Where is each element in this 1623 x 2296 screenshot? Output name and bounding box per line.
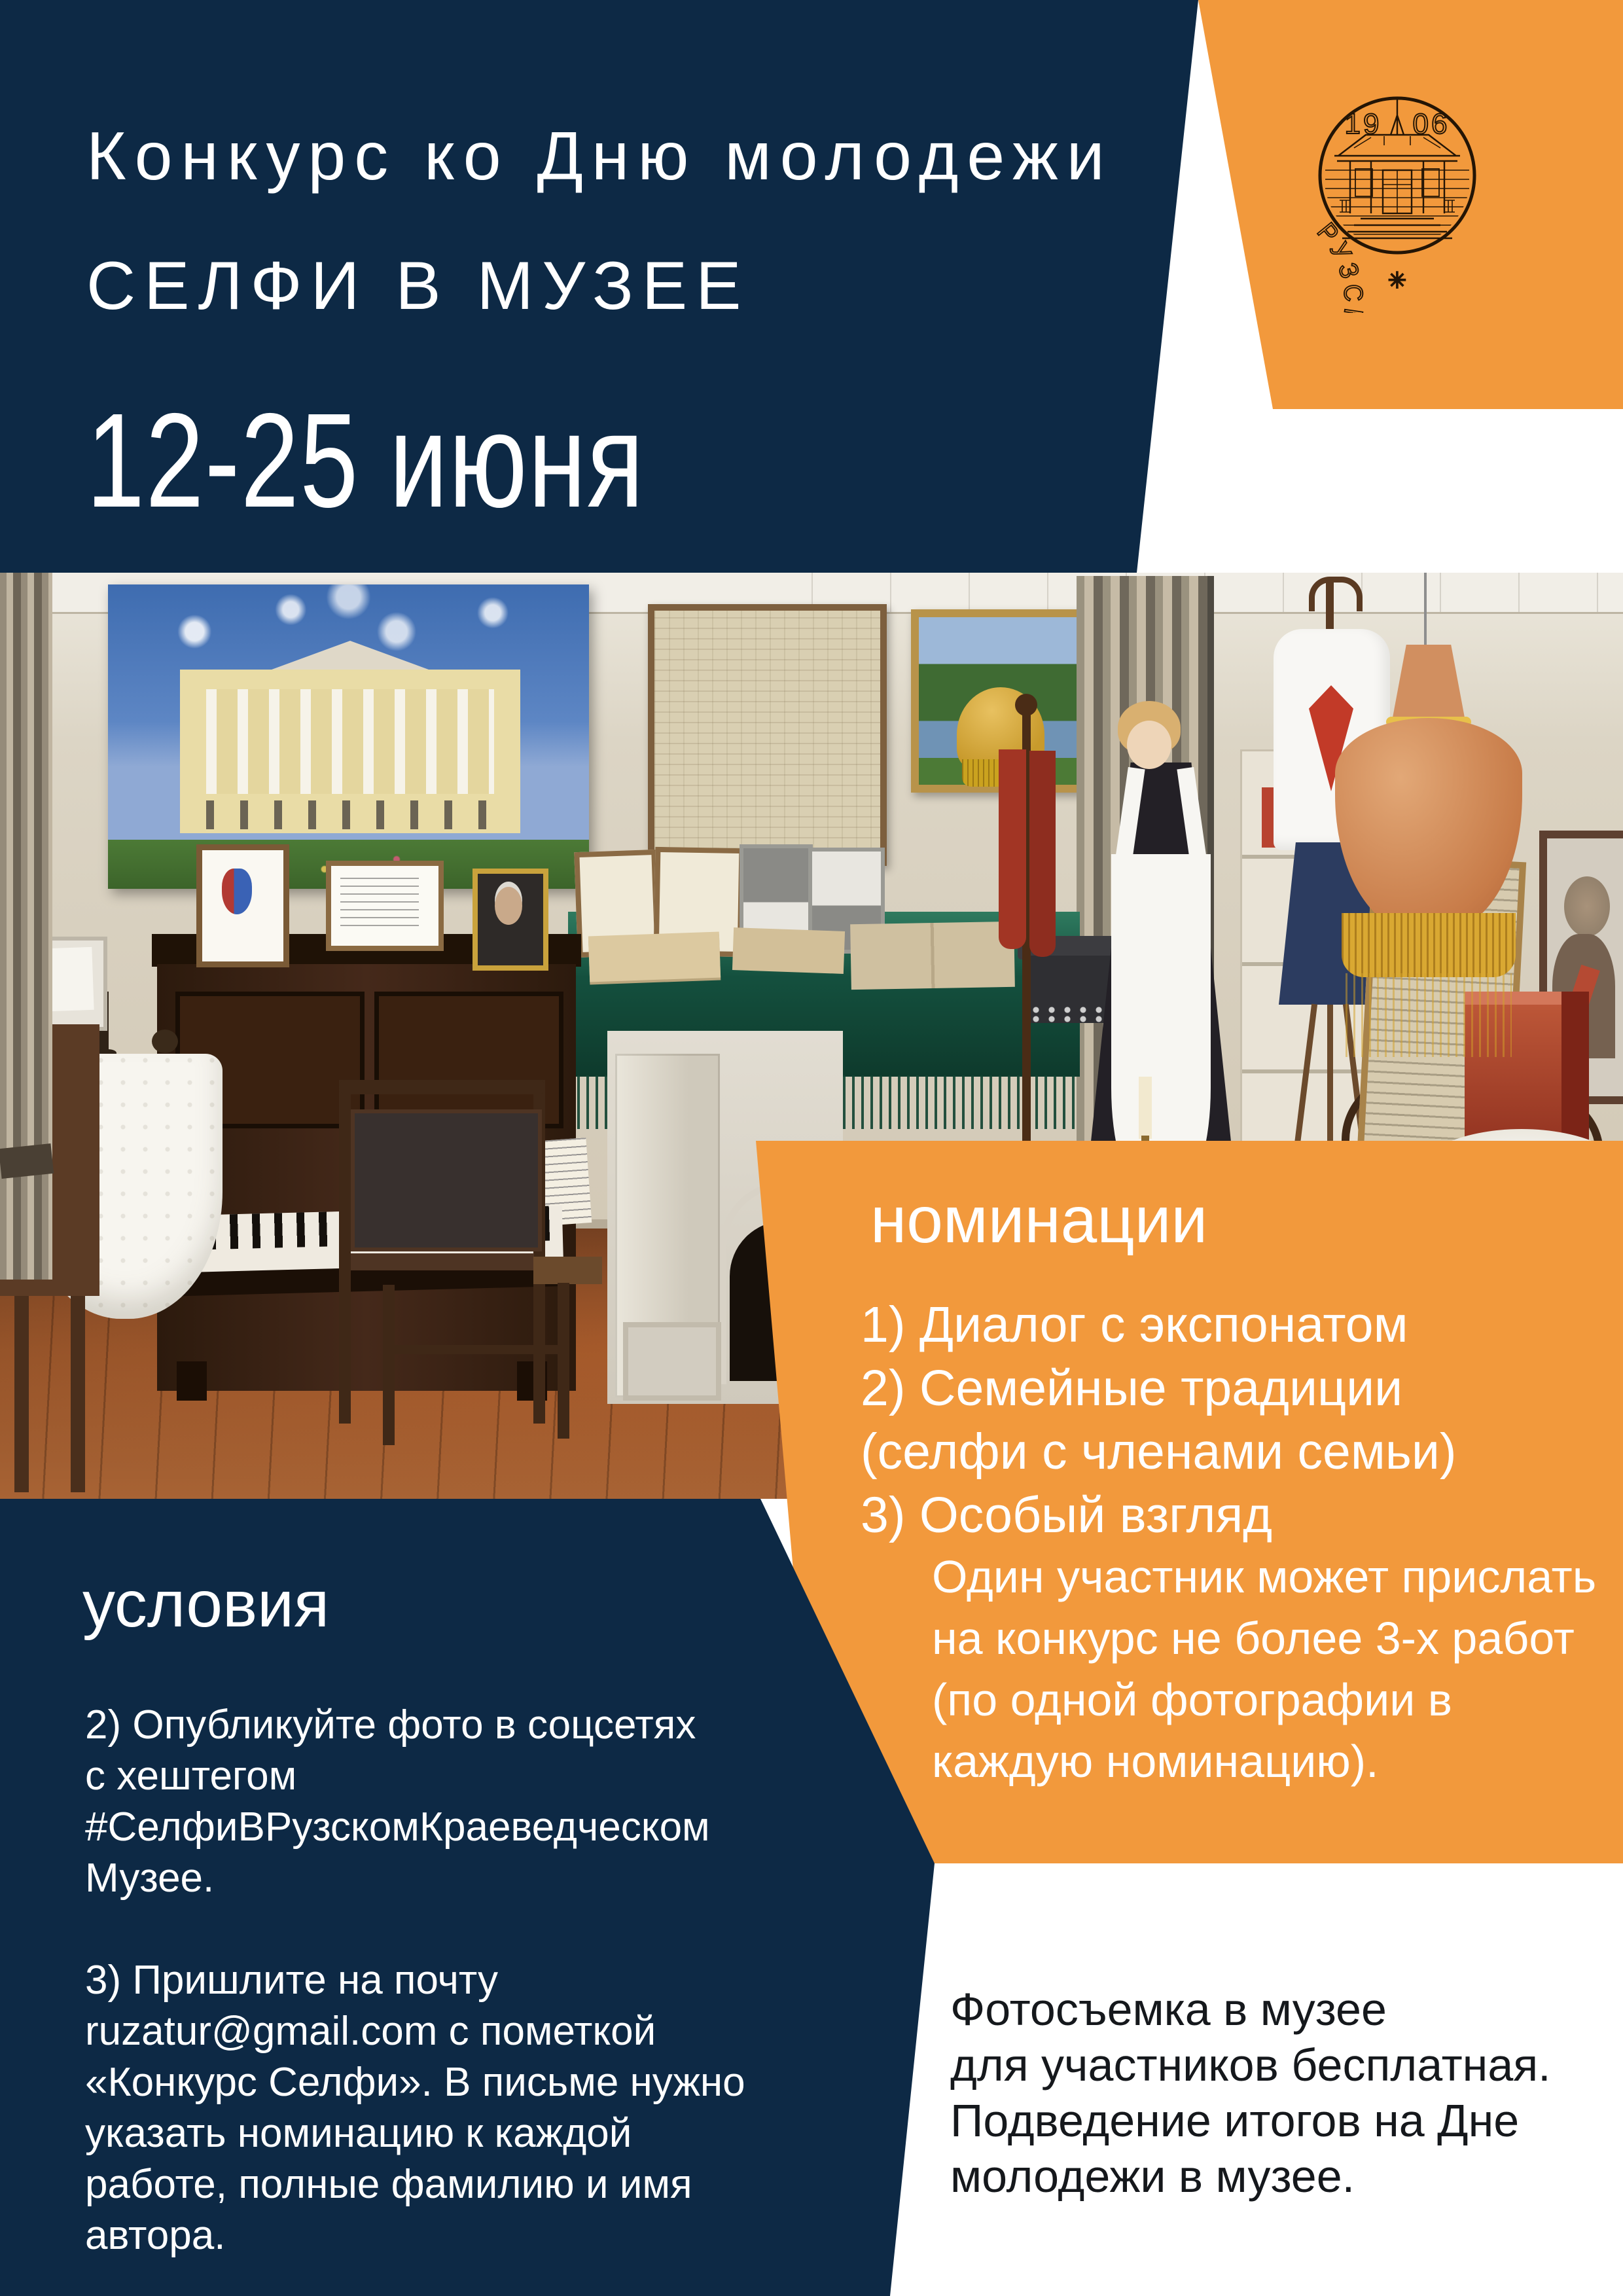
conditions-hashtag: #СелфиВРузскомКраеведческом xyxy=(85,1802,710,1853)
paper-lamp-fringe xyxy=(1342,913,1516,977)
red-banner-2 xyxy=(1029,751,1056,957)
coat-stand-hook xyxy=(1309,577,1363,611)
pavilion-steps xyxy=(1342,219,1452,238)
conditions-line: Музее. xyxy=(85,1853,710,1904)
flag-stand-finial xyxy=(1015,694,1037,716)
conditions-line: с хештегом xyxy=(85,1751,710,1802)
chair-seat xyxy=(533,1257,602,1284)
nomination-item: 3) Особый взгляд xyxy=(861,1484,1457,1547)
conditions-line: указать номинацию к каждой xyxy=(85,2108,745,2159)
footer-line: Подведение итогов на Дне xyxy=(950,2093,1551,2149)
logo-year-right: 06 xyxy=(1413,108,1450,140)
paper-lamp-strands xyxy=(1346,973,1512,1057)
nominations-list: 1) Диалог с экспонатом 2) Семейные тради… xyxy=(861,1293,1457,1547)
conditions-block2: 3) Пришлите на почту ruzatur@gmail.com с… xyxy=(85,1955,745,2261)
footer-line: Фотосъемка в музее xyxy=(950,1982,1551,2037)
footer-line: для участников бесплатная. xyxy=(950,2037,1551,2093)
nomination-item: 2) Семейные традиции xyxy=(861,1357,1457,1420)
logo-year-left: 19 xyxy=(1345,108,1382,140)
paper-lamp-shade xyxy=(1335,718,1522,931)
nomination-item: (селфи с членами семьи) xyxy=(861,1420,1457,1484)
chair-front-leg-2 xyxy=(558,1283,569,1439)
schoolgirl-apron xyxy=(1111,854,1211,1188)
conditions-line: 2) Опубликуйте фото в соцсетях xyxy=(85,1700,710,1751)
piano-leg-left xyxy=(177,1361,207,1401)
portrait-face xyxy=(495,887,522,925)
contest-dates: 12-25 июня xyxy=(86,384,645,538)
brass-candle xyxy=(1139,1077,1152,1139)
conditions-line: автора. xyxy=(85,2210,745,2261)
chair-rung xyxy=(383,1345,569,1354)
old-papers-stack-1 xyxy=(588,932,721,982)
chair-slat xyxy=(351,1253,534,1270)
coat-of-arms xyxy=(222,869,252,914)
paper-lamp-neck xyxy=(1391,645,1466,725)
chair-front-leg-1 xyxy=(383,1285,395,1445)
red-banner-1 xyxy=(999,749,1026,949)
framed-map xyxy=(648,604,887,866)
conditions-line: 3) Пришлите на почту xyxy=(85,1955,745,2006)
poster-title-line2: СЕЛФИ В МУЗЕЕ xyxy=(86,247,750,325)
fireplace-rosette-panel xyxy=(623,1322,721,1401)
conditions-heading: условия xyxy=(82,1567,329,1642)
note-line: каждую номинацию). xyxy=(932,1731,1596,1792)
palace-columns xyxy=(206,689,494,794)
palace-print xyxy=(108,584,589,889)
chair-back-panel xyxy=(351,1109,542,1251)
note-line: (по одной фотографии в xyxy=(932,1669,1596,1731)
pavilion-window-right xyxy=(1422,169,1439,196)
left-curtain-tieback xyxy=(0,1143,54,1179)
museum-logo: РУЗСКИЙ КРАЕВЕДЧЕСКИЙ МУЗЕЙ 19 06 ✳ xyxy=(1260,38,1535,313)
poster-page: Конкурс ко Дню молодежи СЕЛФИ В МУЗЕЕ 12… xyxy=(0,0,1623,2296)
nomination-item: 1) Диалог с экспонатом xyxy=(861,1293,1457,1357)
palace-windows xyxy=(206,800,494,829)
pavilion-spire xyxy=(1391,98,1404,135)
old-papers-stack-2 xyxy=(732,927,845,974)
conditions-line: «Конкурс Селфи». В письме нужно xyxy=(85,2057,745,2108)
logo-star: ✳ xyxy=(1388,268,1407,293)
poster-title-line1: Конкурс ко Дню молодежи xyxy=(86,118,1113,196)
note-line: на конкурс не более 3-х работ xyxy=(932,1607,1596,1669)
display-case-leg-2 xyxy=(71,1296,85,1492)
logo-ring-text: РУЗСКИЙ КРАЕВЕДЧЕСКИЙ МУЗЕЙ xyxy=(1260,179,1368,313)
conditions-email: ruzatur@gmail.com с пометкой xyxy=(85,2006,745,2057)
conditions-line: работе, полные фамилию и имя xyxy=(85,2159,745,2210)
gilt-portrait-frame xyxy=(473,869,548,971)
coat-of-arms-frame xyxy=(196,844,289,967)
text-document-frame xyxy=(326,861,444,951)
small-cup xyxy=(152,1030,178,1053)
note-line: Один участник может прислать xyxy=(932,1546,1596,1607)
footer-line: молодежи в музее. xyxy=(950,2149,1551,2204)
lamp-cord xyxy=(1424,573,1427,653)
conditions-block1: 2) Опубликуйте фото в соцсетях с хештего… xyxy=(85,1700,710,1904)
chair-top-rail xyxy=(339,1080,545,1094)
portrait-head xyxy=(1564,876,1610,937)
footer-note: Фотосъемка в музее для участников беспла… xyxy=(950,1982,1551,2204)
open-ledger-book xyxy=(850,922,1015,990)
nominations-heading: номинации xyxy=(870,1183,1207,1258)
nominations-note: Один участник может прислать на конкурс … xyxy=(932,1546,1596,1792)
photo-ceiling-grid xyxy=(811,573,1623,612)
display-case-leg-1 xyxy=(14,1296,29,1492)
schoolgirl-face xyxy=(1127,721,1171,769)
chair-stile-left xyxy=(339,1080,351,1424)
pavilion-window-left xyxy=(1355,169,1372,196)
